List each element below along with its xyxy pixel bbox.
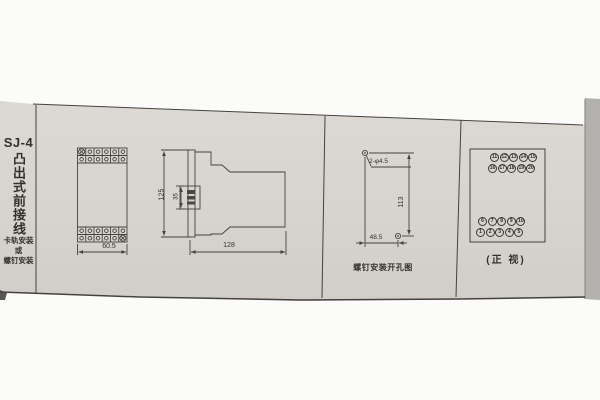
paper-background: [0, 101, 585, 301]
terminal-number: 3: [495, 228, 504, 237]
front-width-dim-label: 60.5: [94, 243, 124, 250]
mounting-notes: 卡轨安装 或 螺钉安装: [0, 236, 37, 266]
terminal-number: 15: [528, 153, 537, 162]
drill-height-dim-label: 113: [398, 194, 406, 210]
mounting-note-line: 或: [0, 246, 37, 256]
drill-width-dim-label: 48.5: [365, 234, 387, 241]
terminal-number-row: 1617181920: [488, 164, 535, 173]
terminal-number: 11: [490, 153, 499, 162]
side-depth-dim-label: 128: [216, 242, 242, 249]
terminal-number-row: 678910: [478, 217, 525, 226]
terminal-number-row: 12345: [476, 228, 523, 237]
terminal-number: 7: [488, 217, 497, 226]
hole-diameter-label: 2-φ4.5: [369, 158, 413, 165]
terminal-number: 2: [486, 228, 495, 237]
terminal-number: 16: [488, 164, 497, 173]
terminal-number: 4: [505, 228, 514, 237]
terminal-number: 19: [517, 164, 526, 173]
page-edge-shadow: [585, 98, 600, 300]
dimension-drawings: [0, 0, 600, 400]
din-clip-dim-label: 35: [174, 190, 181, 204]
scanned-manual-page: SJ-4 凸出式前接线 卡轨安装 或 螺钉安装 60.5 125 35 128 …: [0, 0, 600, 400]
drill-view-caption: 螺钉安装开孔图: [353, 262, 413, 273]
terminal-number: 8: [497, 217, 506, 226]
terminal-number: 13: [509, 153, 518, 162]
terminal-number: 9: [507, 217, 516, 226]
terminal-number: 6: [478, 217, 487, 226]
terminal-number-row: 1112131415: [490, 153, 537, 162]
mounting-note-line: 卡轨安装: [0, 236, 37, 246]
mounting-note-line: 螺钉安装: [0, 256, 37, 266]
terminal-number: 17: [498, 164, 507, 173]
side-height-dim-label: 125: [159, 183, 168, 207]
terminal-number: 12: [500, 153, 509, 162]
terminal-number: 14: [519, 153, 528, 162]
wiring-type-vertical-title: 凸出式前接线: [8, 148, 28, 240]
terminal-number: 10: [516, 217, 525, 226]
terminal-number: 5: [514, 228, 523, 237]
terminal-number: 1: [476, 228, 485, 237]
front-face-caption: (正 视): [486, 251, 526, 266]
terminal-number: 18: [507, 164, 516, 173]
terminal-number: 20: [526, 164, 535, 173]
